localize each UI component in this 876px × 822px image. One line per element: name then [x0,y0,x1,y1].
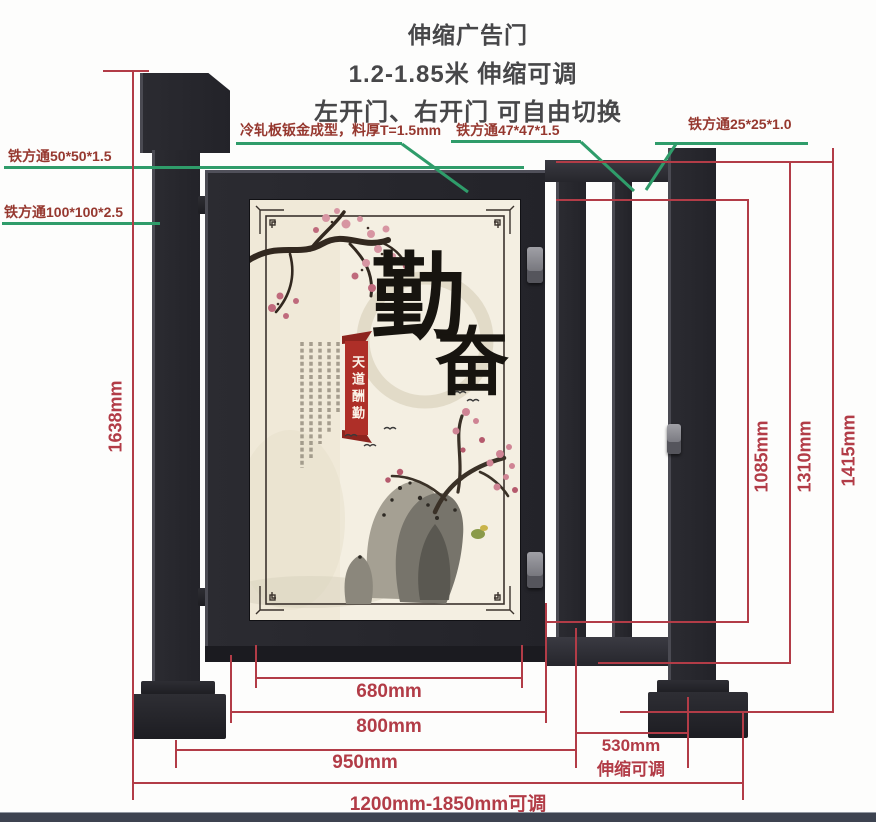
leader-sheet-metal [236,142,402,145]
footer-bar [0,812,876,822]
ext-680-left [255,645,257,688]
ext-800-right [545,603,547,723]
advert-poster-illustration: 勤 奋 [250,200,520,620]
dim-door-width: 800mm [339,716,439,738]
ext-950-right [575,628,577,768]
left-post [152,150,200,692]
motor-housing [140,73,230,153]
dim-1085-bottom [545,621,749,623]
dim-door-height: 1310mm [795,407,816,507]
dim-rail-height: 1085mm [752,407,773,507]
post-lock [667,424,681,454]
dim-950-line [175,749,577,751]
ext-680-right [521,645,523,688]
dim-1638-top-tick [103,70,149,72]
dim-1638-line [132,70,134,800]
dim-retract-note: 伸缩可调 [588,755,674,780]
callout-tube47: 铁方通47*47*1.5 [456,120,560,140]
slide-bar-47 [556,170,586,662]
leader-tube47 [451,140,581,143]
dim-1085-top [556,199,749,201]
left-post-collar [141,681,215,695]
leader-tube25 [655,142,808,145]
left-post-base [132,694,226,739]
dim-680-line [255,677,523,679]
dim-1310-line [789,161,791,664]
door-lock-upper [527,247,543,283]
callout-tube100: 铁方通100*100*2.5 [4,202,123,222]
dim-1415-bottom [620,711,834,713]
leader-tube50 [4,166,524,169]
product-diagram: 伸缩广告门 1.2-1.85米 伸缩可调 左开门、右开门 可自由切换 [0,0,876,822]
dim-1415-line [832,148,834,713]
door-lock-lower [527,552,543,588]
title-range: 1.2-1.85米 伸缩可调 [268,54,658,89]
slide-bar-25 [612,170,632,662]
dim-range-line [133,782,744,784]
right-post [668,148,716,692]
leader-tube100 [2,222,160,225]
dim-1310-1415-top [556,161,834,163]
top-rail [545,160,671,182]
dim-1310-bottom [598,662,791,664]
callout-tube50: 铁方通50*50*1.5 [8,146,112,166]
dim-retract-span: 530mm [588,736,674,756]
banner-text: 天道酬勤 [346,346,367,432]
dim-total-height: 1638mm [106,367,127,467]
ext-range-right [742,712,744,800]
dim-post-height: 1415mm [839,401,860,501]
dim-fixed-span: 950mm [315,752,415,774]
dim-1085-line [747,199,749,623]
dim-poster-width: 680mm [339,681,439,703]
calligraphy-char-2: 奋 [435,320,509,406]
ext-950-left [175,740,177,768]
dim-800-line [230,711,547,713]
callout-tube25: 铁方通25*25*1.0 [688,114,792,134]
callout-sheet-metal: 冷轧板钣金成型，料厚T=1.5mm [240,120,441,140]
page-title: 伸缩广告门 [288,16,648,50]
dim-530-line [575,732,689,734]
